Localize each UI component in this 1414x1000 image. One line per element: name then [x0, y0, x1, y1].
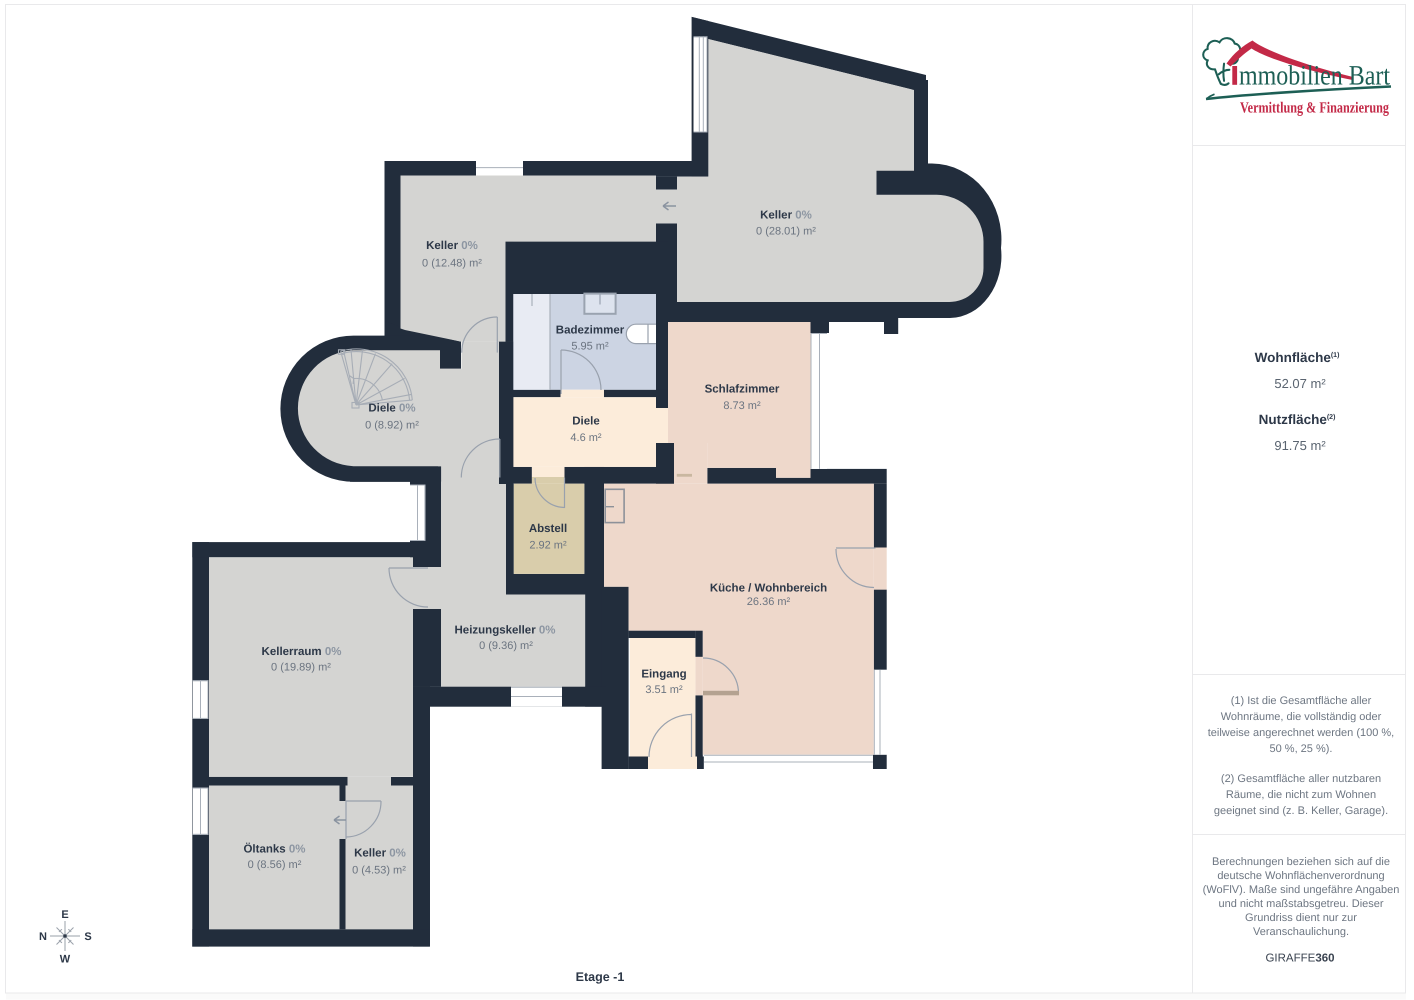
- svg-text:Etage -1: Etage -1: [576, 970, 625, 984]
- svg-text:Öltanks 0%: Öltanks 0%: [243, 843, 305, 856]
- svg-text:3.51 m²: 3.51 m²: [645, 684, 683, 696]
- svg-text:Grundriss dient nur zur: Grundriss dient nur zur: [1245, 912, 1357, 924]
- svg-text:Küche / Wohnbereich: Küche / Wohnbereich: [710, 583, 827, 595]
- svg-text:0 (28.01) m²: 0 (28.01) m²: [756, 226, 816, 238]
- svg-text:Abstell: Abstell: [529, 523, 567, 535]
- svg-text:Badezimmer: Badezimmer: [556, 325, 625, 337]
- svg-text:Vermittlung & Finanzierung: Vermittlung & Finanzierung: [1240, 100, 1389, 117]
- svg-text:(2) Gesamtfläche aller nutzbar: (2) Gesamtfläche aller nutzbaren: [1221, 773, 1381, 785]
- svg-text:Schlafzimmer: Schlafzimmer: [705, 384, 780, 396]
- svg-text:52.07 m²: 52.07 m²: [1274, 376, 1326, 391]
- svg-text:8.73 m²: 8.73 m²: [723, 400, 761, 412]
- svg-text:Wohnräume, die vollständig ode: Wohnräume, die vollständig oder: [1221, 711, 1382, 723]
- svg-text:26.36 m²: 26.36 m²: [747, 596, 791, 608]
- svg-text:Berechnungen beziehen sich auf: Berechnungen beziehen sich auf die: [1212, 856, 1390, 868]
- svg-text:deutsche Wohnflächenverordnung: deutsche Wohnflächenverordnung: [1217, 870, 1384, 882]
- svg-text:teilweise angerechnet werden (: teilweise angerechnet werden (100 %,: [1208, 727, 1395, 739]
- svg-text:(1) Ist die Gesamtfläche aller: (1) Ist die Gesamtfläche aller: [1231, 695, 1372, 707]
- svg-text:4.6 m²: 4.6 m²: [570, 432, 602, 444]
- svg-text:2.92 m²: 2.92 m²: [529, 540, 567, 552]
- svg-text:Eingang: Eingang: [641, 669, 686, 681]
- svg-text:geeignet sind (z. B. Keller, G: geeignet sind (z. B. Keller, Garage).: [1214, 805, 1388, 817]
- svg-text:Räume, die nicht zum Wohnen: Räume, die nicht zum Wohnen: [1226, 789, 1376, 801]
- svg-text:Keller 0%: Keller 0%: [354, 848, 406, 860]
- svg-text:W: W: [60, 954, 71, 966]
- svg-text:0 (8.92) m²: 0 (8.92) m²: [365, 420, 419, 432]
- svg-text:0 (19.89) m²: 0 (19.89) m²: [271, 662, 331, 674]
- svg-text:0 (9.36) m²: 0 (9.36) m²: [479, 640, 533, 652]
- svg-text:Veranschaulichung.: Veranschaulichung.: [1253, 926, 1349, 938]
- svg-text:(WoFlV). Maße sind ungefähre A: (WoFlV). Maße sind ungefähre Angaben: [1203, 884, 1400, 896]
- svg-text:Nutzfläche(2): Nutzfläche(2): [1259, 412, 1336, 427]
- svg-text:Diele: Diele: [572, 416, 600, 428]
- svg-text:Wohnfläche(1): Wohnfläche(1): [1255, 350, 1340, 365]
- svg-text:91.75 m²: 91.75 m²: [1274, 438, 1326, 453]
- svg-text:Kellerraum 0%: Kellerraum 0%: [262, 646, 342, 658]
- svg-text:Heizungskeller 0%: Heizungskeller 0%: [455, 625, 556, 637]
- svg-text:0 (8.56) m²: 0 (8.56) m²: [248, 859, 302, 871]
- svg-text:0 (12.48) m²: 0 (12.48) m²: [422, 258, 482, 270]
- svg-text:Keller 0%: Keller 0%: [426, 240, 478, 252]
- svg-text:Keller 0%: Keller 0%: [760, 210, 812, 222]
- svg-text:und nicht maßstabsgetreu. Dies: und nicht maßstabsgetreu. Dieser: [1218, 898, 1383, 910]
- svg-text:E: E: [61, 909, 68, 921]
- svg-text:N: N: [39, 931, 47, 943]
- svg-text:50 %, 25 %).: 50 %, 25 %).: [1270, 743, 1333, 755]
- svg-text:0 (4.53) m²: 0 (4.53) m²: [352, 865, 406, 877]
- svg-text:GIRAFFE360: GIRAFFE360: [1265, 953, 1334, 965]
- svg-text:Diele 0%: Diele 0%: [368, 403, 415, 415]
- svg-text:S: S: [84, 931, 91, 943]
- svg-text:5.95 m²: 5.95 m²: [571, 341, 609, 353]
